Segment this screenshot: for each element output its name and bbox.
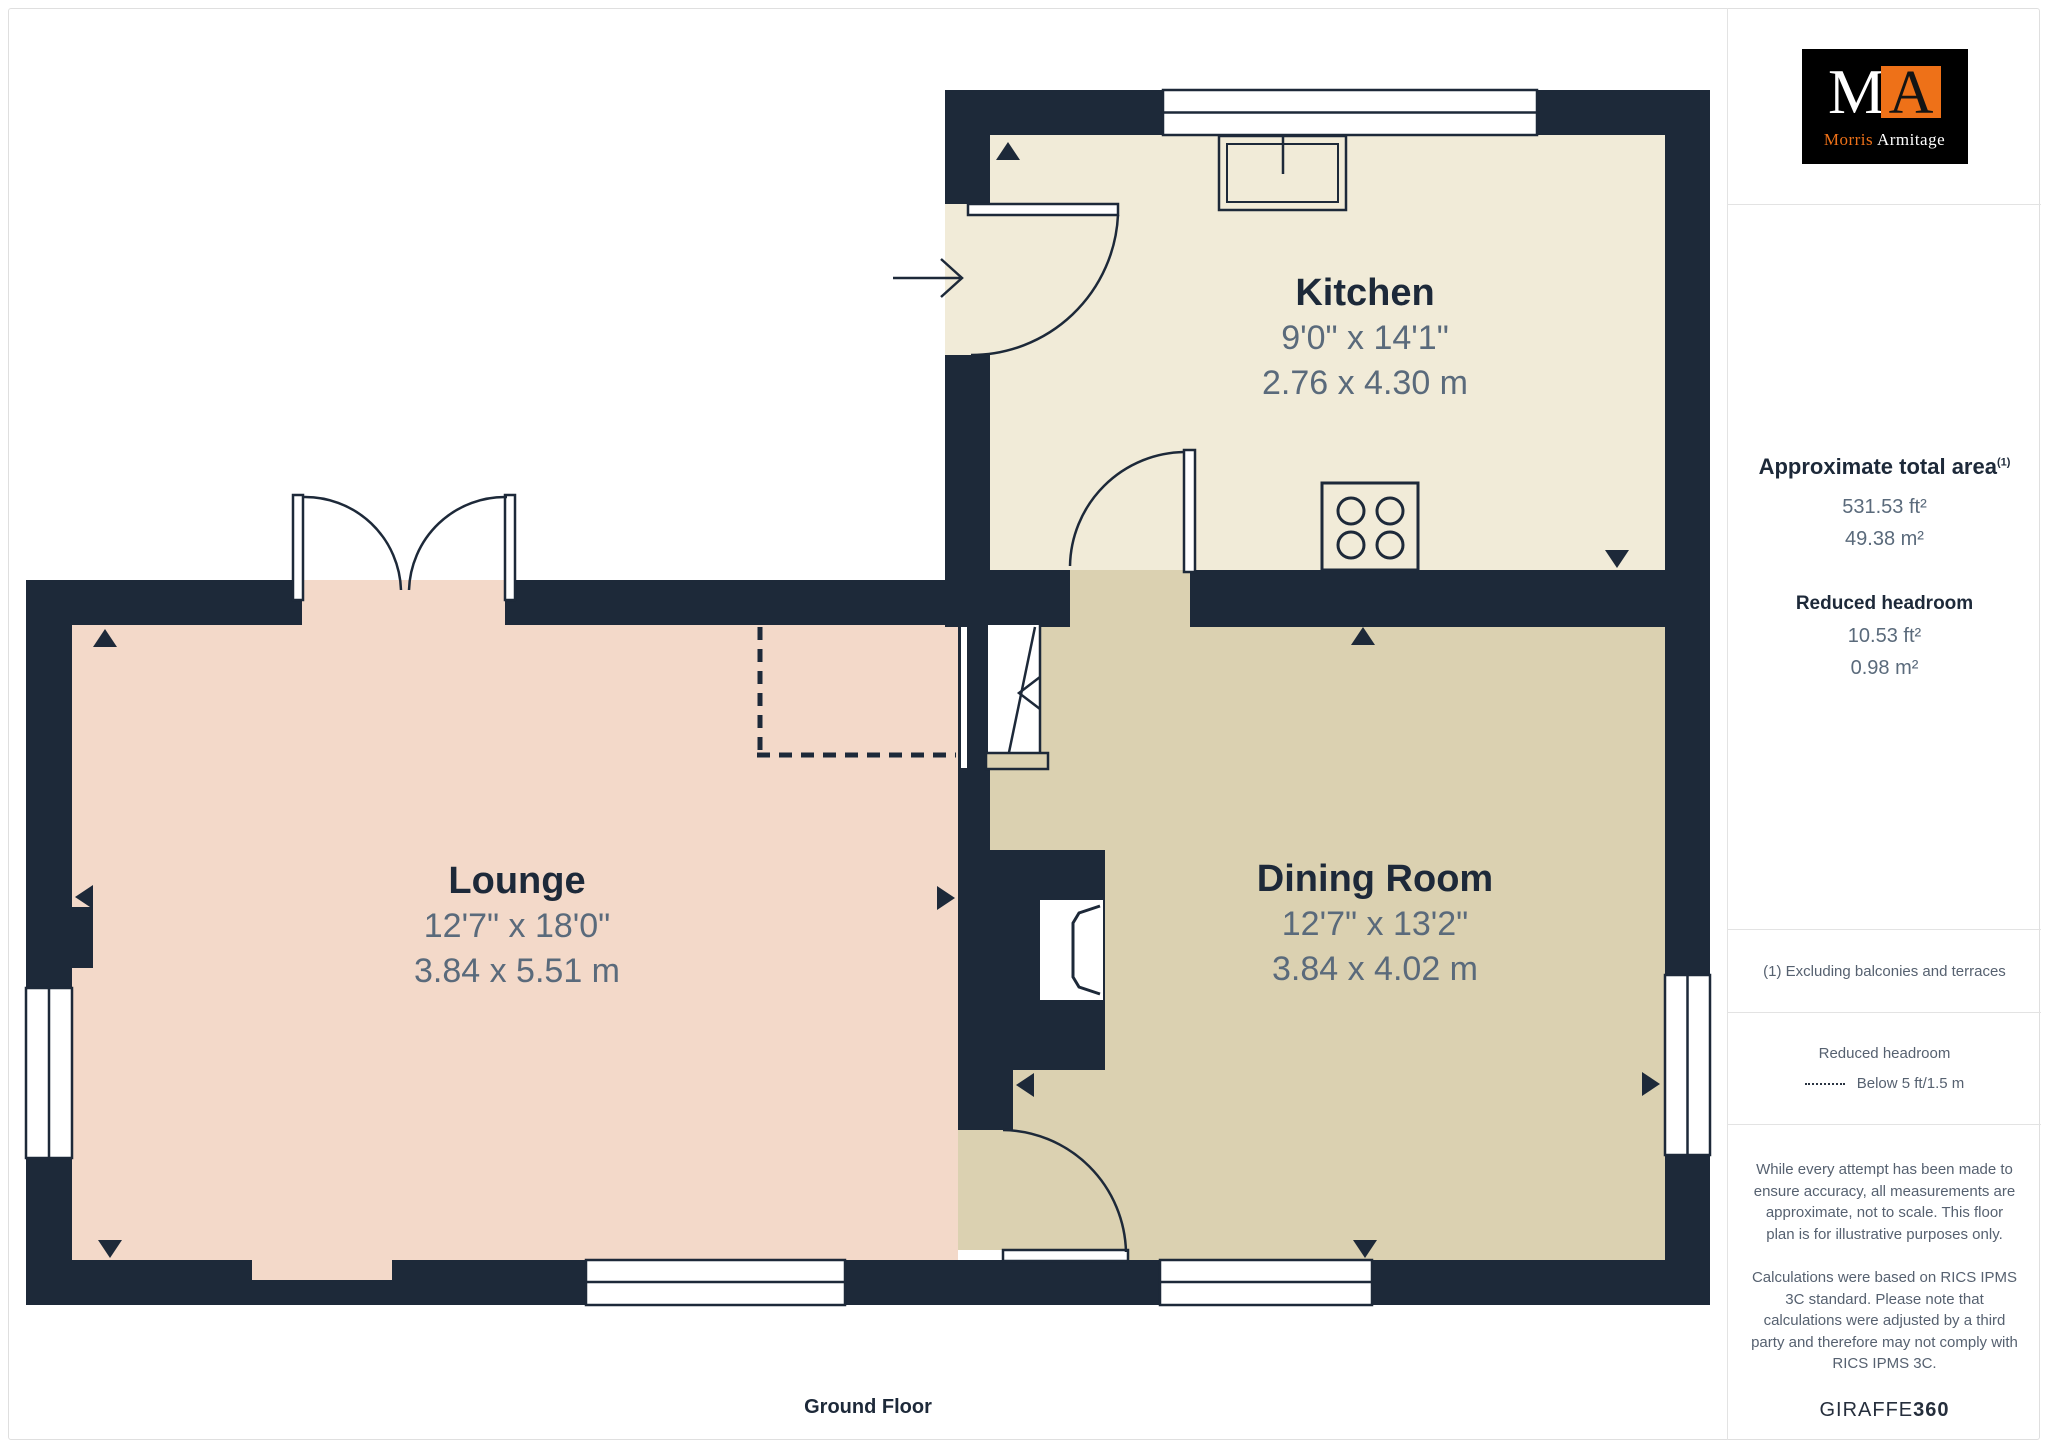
chimney-bump [72,907,93,968]
stair-wall-seam [961,627,967,768]
entry-opening-floor [945,204,990,355]
disclaimer-paragraph-2: Calculations were based on RICS IPMS 3C … [1750,1267,2019,1375]
logo-monogram: M A [1828,62,1941,122]
dining-room-name: Dining Room [1145,856,1605,902]
info-sidebar: M A Morris Armitage Approximate total ar… [1727,8,2041,1440]
disclaimer-section: While every attempt has been made to ens… [1728,1125,2041,1440]
bottom-wall-1 [26,1260,252,1305]
french-door-opening-floor [302,580,505,625]
lounge-dims-metric: 3.84 x 5.51 m [287,949,747,994]
dining-floor-2 [990,770,1665,850]
kitchen-dining-door-leaf [1184,450,1195,572]
dining-room-dims-metric: 3.84 x 4.02 m [1145,947,1605,992]
logo-name: Morris Armitage [1824,130,1945,150]
legend-section: Reduced headroom Below 5 ft/1.5 m [1728,1013,2041,1125]
lounge-left-wall [26,580,72,1305]
lounge-label: Lounge 12'7" x 18'0" 3.84 x 5.51 m [287,858,747,994]
bottom-wall-4 [1372,1260,1665,1305]
total-area-ft: 531.53 ft² [1842,496,1927,519]
legend-item-text: Below 5 ft/1.5 m [1857,1075,1965,1092]
entry-door-leaf [968,204,1118,215]
fireplace [1040,900,1103,1000]
total-area-m: 49.38 m² [1845,528,1924,551]
floor-title: Ground Floor [718,1396,1018,1419]
logo-monogram-a-box: A [1881,66,1941,118]
dining-floor-1 [1040,625,1665,770]
kitchen-bottom-wall-right [1190,570,1710,627]
divider-wall-lower [958,1070,1013,1130]
logo-monogram-m: M [1828,62,1885,122]
french-door-right-leaf [505,495,515,600]
total-area-title-text: Approximate total area [1759,454,1997,479]
dining-room-dims-imperial: 12'7" x 13'2" [1145,902,1605,947]
french-door-left-leaf [293,495,303,600]
giraffe360-brand: GIRAFFE360 [1750,1399,2019,1422]
reduced-headroom-title: Reduced headroom [1796,593,1973,615]
kitchen-name: Kitchen [1135,270,1595,316]
brand-name: GIRAFFE [1819,1399,1913,1421]
disclaimer-paragraph-1: While every attempt has been made to ens… [1750,1159,2019,1245]
legend-item: Below 5 ft/1.5 m [1805,1075,1965,1092]
dining-door-leaf [1003,1250,1128,1261]
french-door-right-swing [409,497,507,590]
logo-name-first: Morris [1824,130,1873,149]
lounge-dining-opening-floor [958,1130,1013,1250]
logo-monogram-a: A [1889,59,1934,127]
kitchen-dining-opening-floor [1070,570,1190,627]
logo-name-last: Armitage [1877,130,1945,149]
logo-section: M A Morris Armitage [1728,8,2041,205]
morris-armitage-logo: M A Morris Armitage [1802,49,1968,164]
kitchen-dims-metric: 2.76 x 4.30 m [1135,361,1595,406]
footnote-text: (1) Excluding balconies and terraces [1763,963,2006,980]
lounge-name: Lounge [287,858,747,904]
area-section: Approximate total area(1) 531.53 ft² 49.… [1728,205,2041,930]
stair-bottom-step [986,753,1048,769]
dotted-line-icon [1805,1083,1845,1085]
stairwell [988,625,1040,770]
dining-room-label: Dining Room 12'7" x 13'2" 3.84 x 4.02 m [1145,856,1605,992]
reduced-headroom-m: 0.98 m² [1851,657,1919,680]
kitchen-left-wall-lower [945,355,990,570]
reduced-headroom-ft: 10.53 ft² [1848,625,1921,648]
total-area-footnote-marker: (1) [1997,457,2010,469]
bottom-wall-2 [392,1260,586,1305]
footnote-section: (1) Excluding balconies and terraces [1728,930,2041,1013]
kitchen-label: Kitchen 9'0" x 14'1" 2.76 x 4.30 m [1135,270,1595,406]
kitchen-dims-imperial: 9'0" x 14'1" [1135,316,1595,361]
bottom-wall-3 [845,1260,1160,1305]
hob [1322,483,1418,570]
legend-title: Reduced headroom [1819,1045,1951,1062]
bottom-wall-recess [252,1280,392,1305]
french-door-left-swing [303,497,401,590]
total-area-title: Approximate total area(1) [1759,454,2011,480]
lounge-dims-imperial: 12'7" x 18'0" [287,904,747,949]
brand-suffix: 360 [1913,1399,1949,1421]
dining-floor-4 [1013,1070,1665,1260]
kitchen-left-wall-upper [945,90,990,204]
hearth-recess-floor [252,1260,392,1280]
